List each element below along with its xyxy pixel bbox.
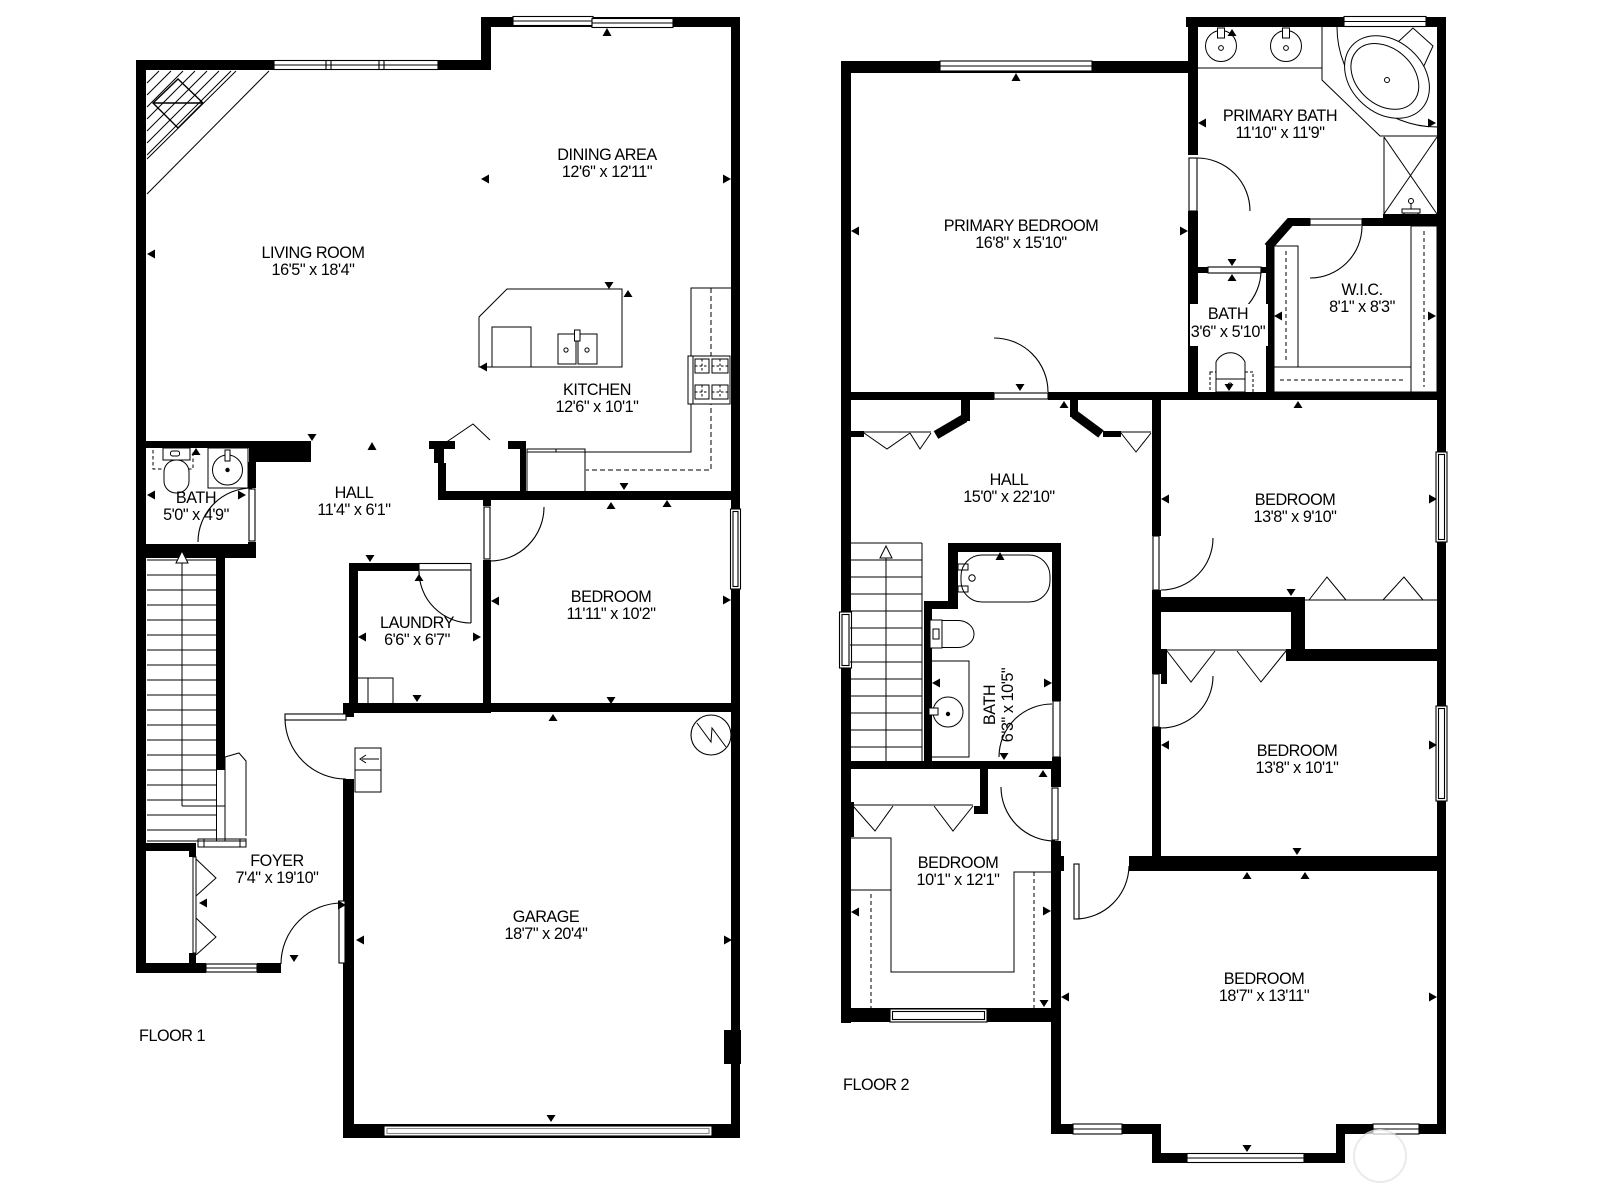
svg-text:8'1" x 8'3": 8'1" x 8'3" — [1329, 298, 1396, 316]
svg-text:BEDROOM: BEDROOM — [1255, 491, 1336, 509]
svg-text:7'4" x 19'10": 7'4" x 19'10" — [236, 869, 320, 887]
svg-text:FOYER: FOYER — [250, 852, 304, 870]
svg-text:6'6" x 6'7": 6'6" x 6'7" — [384, 631, 451, 649]
svg-text:DINING AREA: DINING AREA — [557, 146, 657, 164]
svg-text:12'6" x 10'1": 12'6" x 10'1" — [556, 398, 640, 416]
svg-text:13'8" x 9'10": 13'8" x 9'10" — [1254, 508, 1338, 526]
svg-text:HALL: HALL — [335, 484, 374, 502]
svg-text:12'6" x 12'11": 12'6" x 12'11" — [562, 163, 653, 181]
svg-text:10'1" x 12'1": 10'1" x 12'1" — [917, 871, 1001, 889]
svg-text:PRIMARY BEDROOM: PRIMARY BEDROOM — [944, 217, 1099, 235]
svg-text:13'8" x 10'1": 13'8" x 10'1" — [1256, 759, 1340, 777]
svg-text:BEDROOM: BEDROOM — [1257, 742, 1338, 760]
svg-text:BATH: BATH — [176, 489, 216, 507]
svg-text:18'7" x 13'11": 18'7" x 13'11" — [1219, 987, 1310, 1005]
svg-text:W.I.C.: W.I.C. — [1341, 281, 1382, 299]
svg-text:BEDROOM: BEDROOM — [918, 854, 999, 872]
svg-text:6'3" x 10'5": 6'3" x 10'5" — [999, 667, 1017, 742]
svg-text:11'4" x 6'1": 11'4" x 6'1" — [317, 501, 391, 519]
svg-text:11'10" x 11'9": 11'10" x 11'9" — [1235, 124, 1325, 142]
svg-text:3'6" x 5'10": 3'6" x 5'10" — [1191, 323, 1266, 341]
svg-text:LIVING ROOM: LIVING ROOM — [262, 244, 365, 262]
svg-text:BEDROOM: BEDROOM — [1224, 970, 1305, 988]
svg-text:5'0" x 4'9": 5'0" x 4'9" — [163, 506, 230, 524]
svg-text:11'11" x 10'2": 11'11" x 10'2" — [566, 605, 656, 623]
svg-text:BATH: BATH — [981, 685, 999, 725]
svg-text:FLOOR 1: FLOOR 1 — [139, 1027, 206, 1045]
svg-text:LAUNDRY: LAUNDRY — [380, 614, 455, 632]
svg-text:HALL: HALL — [990, 471, 1029, 489]
svg-text:PRIMARY BATH: PRIMARY BATH — [1223, 107, 1337, 125]
svg-text:BEDROOM: BEDROOM — [571, 588, 652, 606]
svg-text:KITCHEN: KITCHEN — [563, 381, 631, 399]
svg-text:16'5" x 18'4": 16'5" x 18'4" — [272, 261, 356, 279]
svg-text:BATH: BATH — [1208, 305, 1248, 323]
svg-text:16'8" x 15'10": 16'8" x 15'10" — [975, 234, 1067, 252]
svg-text:GARAGE: GARAGE — [513, 908, 580, 926]
svg-text:18'7" x 20'4": 18'7" x 20'4" — [505, 925, 589, 943]
svg-text:15'0" x 22'10": 15'0" x 22'10" — [963, 488, 1055, 506]
svg-text:FLOOR 2: FLOOR 2 — [843, 1076, 910, 1094]
